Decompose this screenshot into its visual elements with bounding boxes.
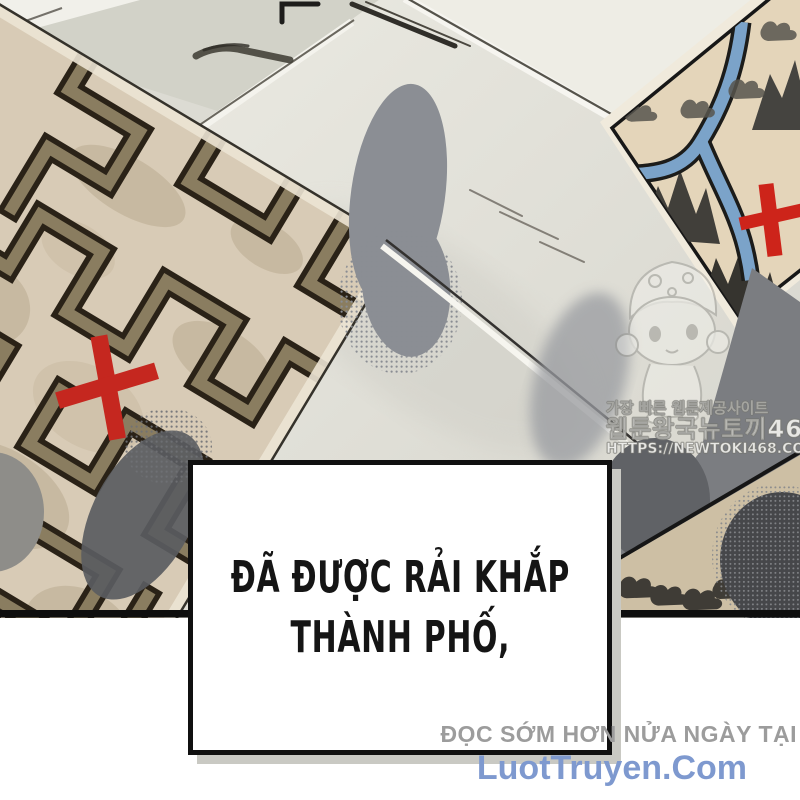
promo-site-name: LuotTruyen.Com — [440, 749, 797, 788]
site-watermark-url: HTTPS://NEWTOKI468.COM — [606, 442, 800, 457]
caption-line: THÀNH PHỐ, — [230, 608, 569, 667]
caption-box: ĐÃ ĐƯỢC RẢI KHẮP THÀNH PHỐ, — [188, 460, 612, 755]
comic-page: ĐÃ ĐƯỢC RẢI KHẮP THÀNH PHỐ, 가장 빠른 웹툰제공사이… — [0, 0, 800, 800]
site-watermark: 가장 빠른 웹툰제공사이트 웹툰왕국뉴토끼468 HTTPS://NEWTOKI… — [606, 401, 800, 457]
caption-text: ĐÃ ĐƯỢC RẢI KHẮP THÀNH PHỐ, — [151, 548, 650, 667]
site-watermark-line2: 웹툰왕국뉴토끼468 — [606, 417, 800, 442]
promo-tagline: ĐỌC SỚM HƠN NỬA NGÀY TẠI — [440, 721, 797, 748]
caption-line: ĐÃ ĐƯỢC RẢI KHẮP — [230, 548, 569, 607]
promo-watermark: ĐỌC SỚM HƠN NỬA NGÀY TẠI LuotTruyen.Com — [440, 721, 797, 788]
